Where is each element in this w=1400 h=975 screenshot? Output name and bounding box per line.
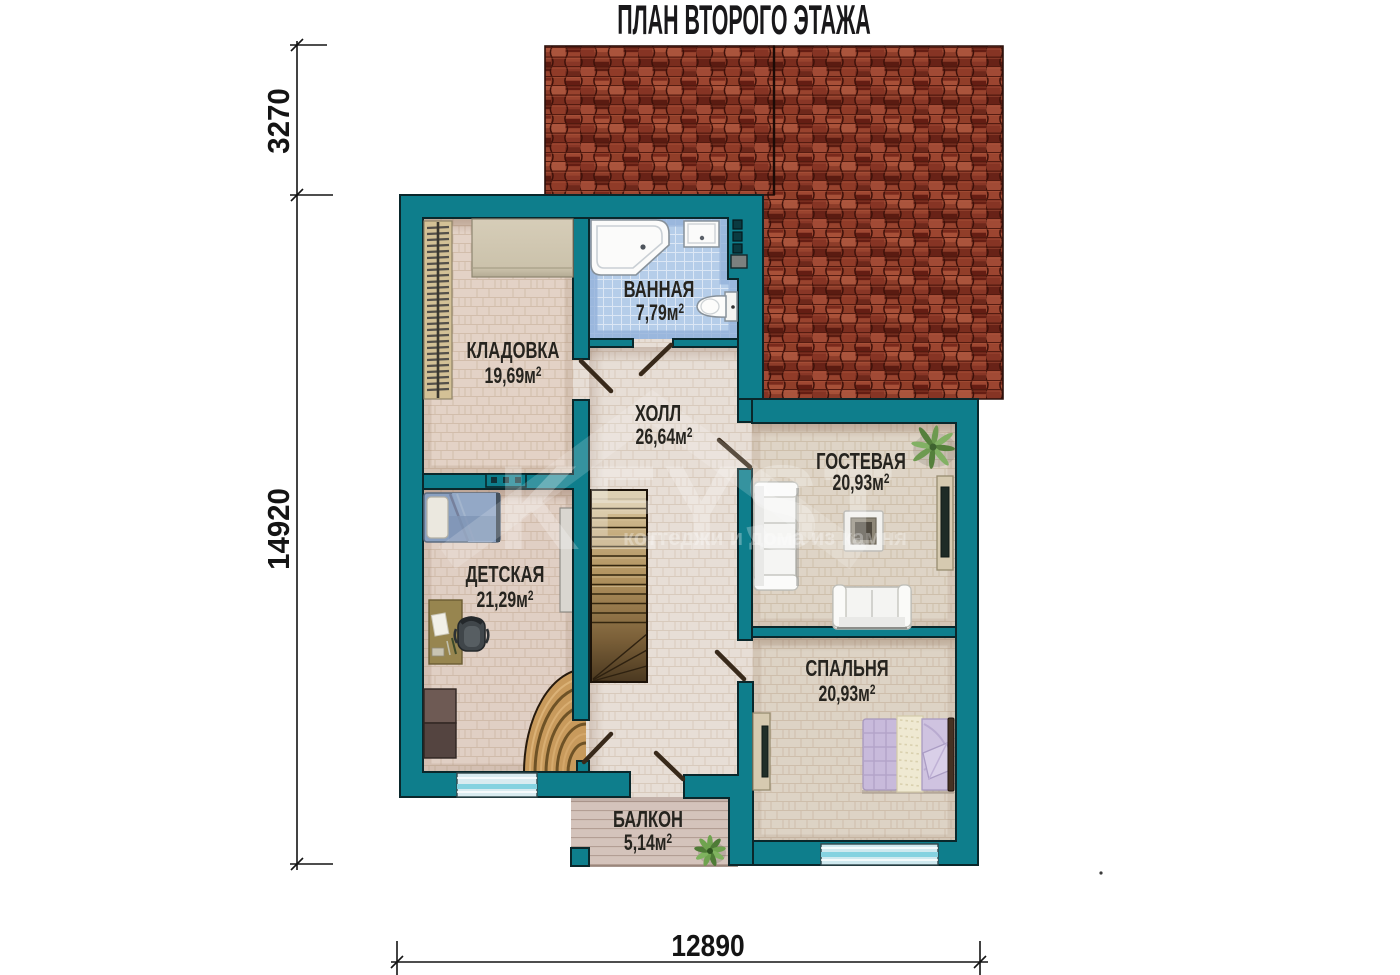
- svg-text:КЛАДОВКА: КЛАДОВКА: [467, 338, 560, 363]
- svg-text:СПАЛЬНЯ: СПАЛЬНЯ: [805, 656, 888, 681]
- svg-text:ВАННАЯ: ВАННАЯ: [624, 277, 695, 302]
- svg-text:26,64м2: 26,64м2: [636, 424, 693, 449]
- svg-text:коттеджи и дома из камня: коттеджи и дома из камня: [623, 525, 907, 550]
- svg-text:12890: 12890: [671, 929, 744, 963]
- svg-text:7,79м2: 7,79м2: [636, 300, 684, 325]
- svg-text:19,69м2: 19,69м2: [485, 363, 542, 388]
- svg-text:5,14м2: 5,14м2: [624, 830, 672, 855]
- svg-text:21,29м2: 21,29м2: [477, 587, 534, 612]
- svg-text:БАЛКОН: БАЛКОН: [613, 807, 683, 832]
- svg-text:ПЛАН ВТОРОГО ЭТАЖА: ПЛАН ВТОРОГО ЭТАЖА: [617, 0, 871, 44]
- svg-text:14920: 14920: [262, 488, 296, 570]
- svg-text:ДЕТСКАЯ: ДЕТСКАЯ: [466, 562, 545, 587]
- svg-text:ХОЛЛ: ХОЛЛ: [635, 401, 681, 426]
- svg-text:20,93м2: 20,93м2: [819, 681, 876, 706]
- svg-text:20,93м2: 20,93м2: [833, 470, 890, 495]
- svg-text:3270: 3270: [262, 88, 296, 153]
